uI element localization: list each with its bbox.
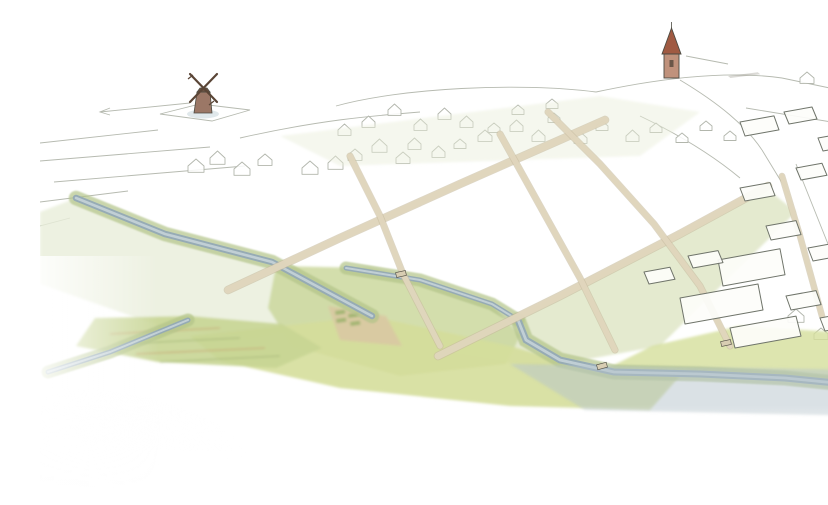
church-spire [662, 28, 681, 54]
pencil-line [686, 56, 728, 64]
sketch-house-outline [210, 151, 225, 164]
background-wash [280, 96, 700, 166]
sketch-house-outline [700, 121, 712, 131]
pencil-line [596, 75, 782, 92]
pencil-line [40, 147, 210, 161]
existing-building-outline [808, 243, 828, 261]
watercolor-masterplan-canvas [40, 16, 828, 489]
existing-building-outline [784, 107, 817, 124]
windmill [187, 74, 219, 119]
sketch-house-outline [302, 161, 318, 174]
landmarks-layer [187, 22, 760, 119]
sketch-house-outline [188, 159, 204, 172]
vignette-left [40, 256, 160, 489]
sketch-house-outline [800, 72, 814, 83]
existing-building-outline [818, 133, 828, 151]
pencil-line [100, 103, 190, 112]
church [662, 22, 681, 78]
sketch-house-outline [388, 104, 401, 115]
pencil-line [40, 130, 158, 143]
sketch-house-outline [258, 154, 272, 165]
existing-building-outline [786, 291, 821, 310]
sketch-house-outline [676, 133, 688, 143]
tower-window [670, 60, 674, 67]
aerial-village-illustration: Watercolor-and-ink aerial artist impress… [40, 16, 828, 489]
sketch-house-outline [234, 162, 250, 175]
pencil-line [54, 166, 245, 182]
existing-building-outline [796, 163, 827, 180]
existing-building-outline [740, 116, 779, 136]
sketch-house-outline [724, 131, 736, 141]
